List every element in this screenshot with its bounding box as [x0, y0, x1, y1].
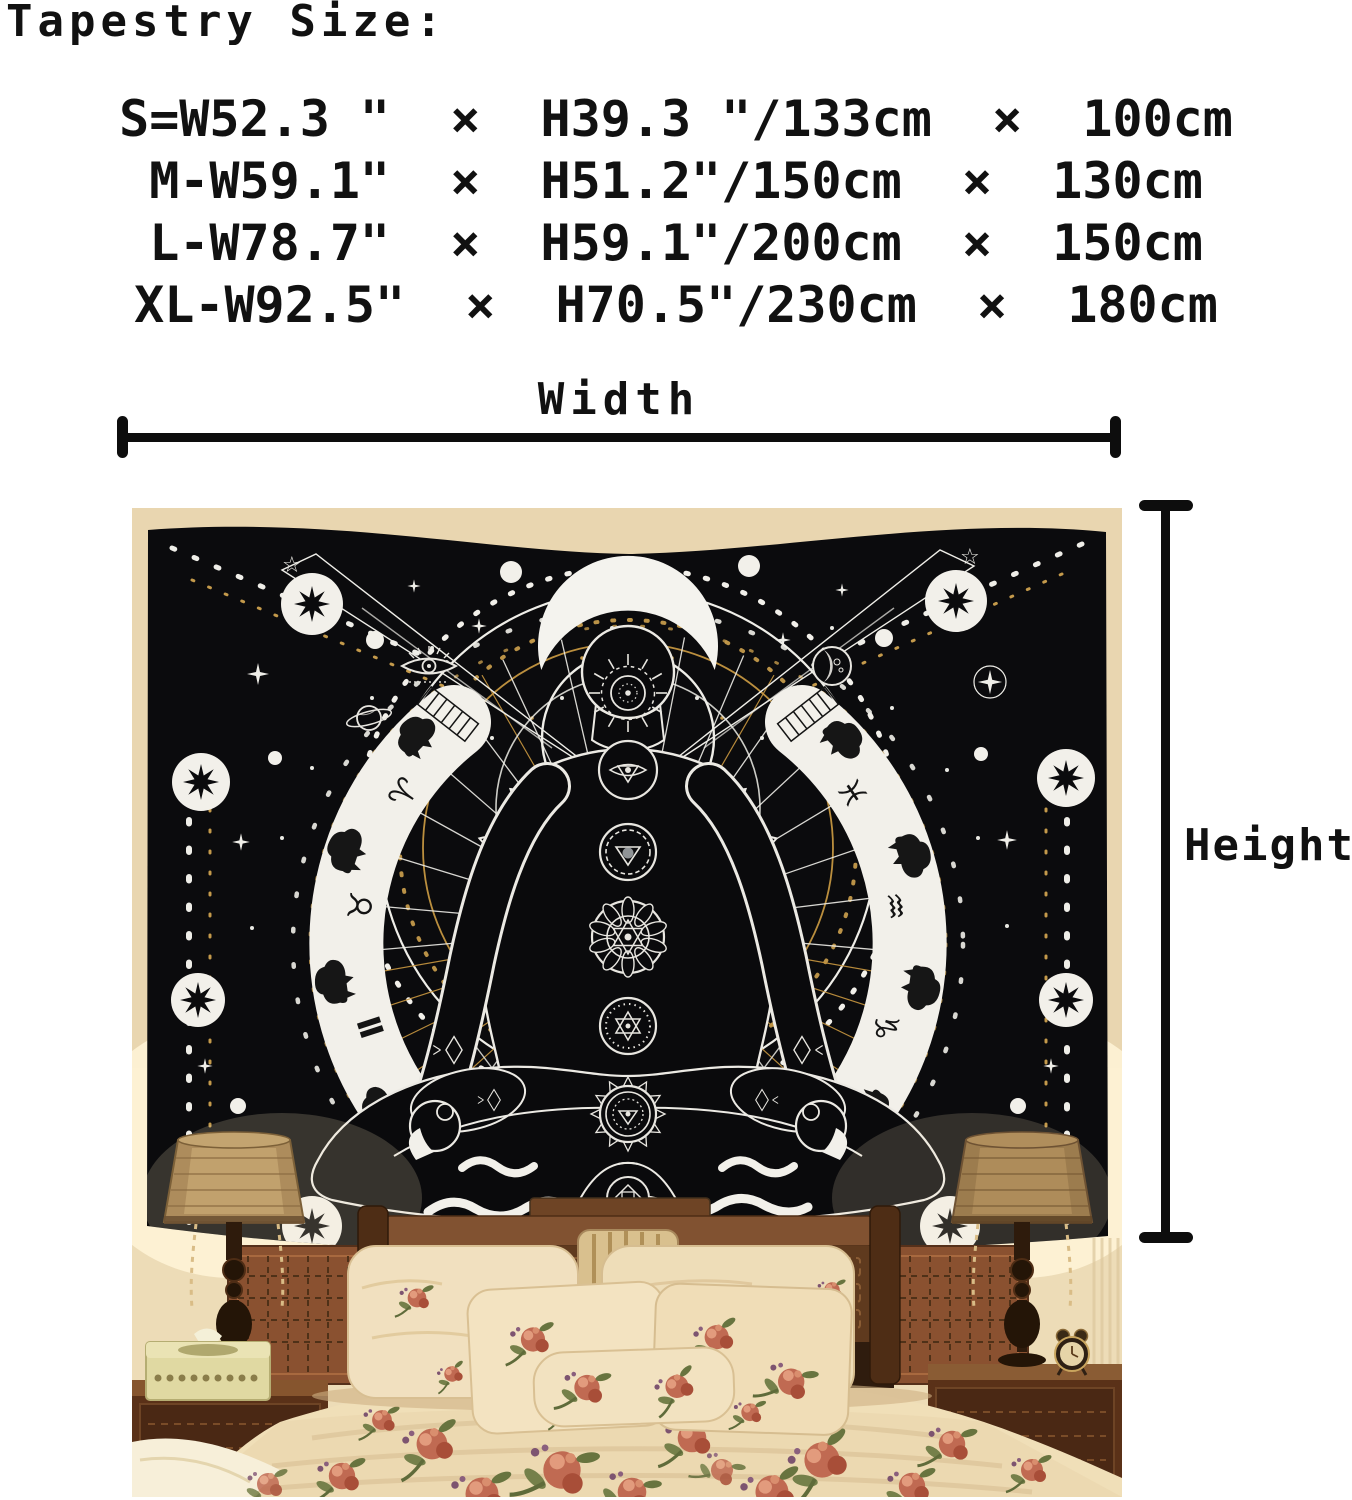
page-title: Tapestry Size:	[6, 0, 447, 47]
zodiac-glyph: ♒	[874, 889, 916, 923]
solar-plexus-chakra	[600, 998, 656, 1054]
pillows	[312, 1230, 932, 1436]
height-measure-line	[1161, 505, 1170, 1238]
height-label: Height	[1184, 820, 1352, 871]
center-bolster	[533, 1346, 735, 1427]
moon-sphere-icon	[813, 647, 851, 685]
size-chart: S=W52.3 " × H39.3 "/133cm × 100cm M-W59.…	[0, 88, 1352, 336]
star-outline-icon: ☆	[960, 545, 980, 570]
size-row-xl: XL-W92.5" × H70.5"/230cm × 180cm	[0, 274, 1352, 336]
product-photo: ☆ ☆	[132, 508, 1122, 1497]
size-row-s: S=W52.3 " × H39.3 "/133cm × 100cm	[0, 88, 1352, 150]
width-measure-line	[122, 433, 1116, 442]
width-label: Width	[122, 374, 1116, 425]
throat-chakra	[600, 824, 656, 880]
zodiac-glyph: ♉	[340, 889, 382, 923]
size-row-m: M-W59.1" × H51.2"/150cm × 130cm	[0, 150, 1352, 212]
size-row-l: L-W78.7" × H59.1"/200cm × 150cm	[0, 212, 1352, 274]
product-size-image: Tapestry Size: S=W52.3 " × H39.3 "/133cm…	[0, 0, 1352, 1500]
star-outline-icon: ☆	[282, 553, 302, 578]
third-eye-chakra	[599, 741, 657, 799]
